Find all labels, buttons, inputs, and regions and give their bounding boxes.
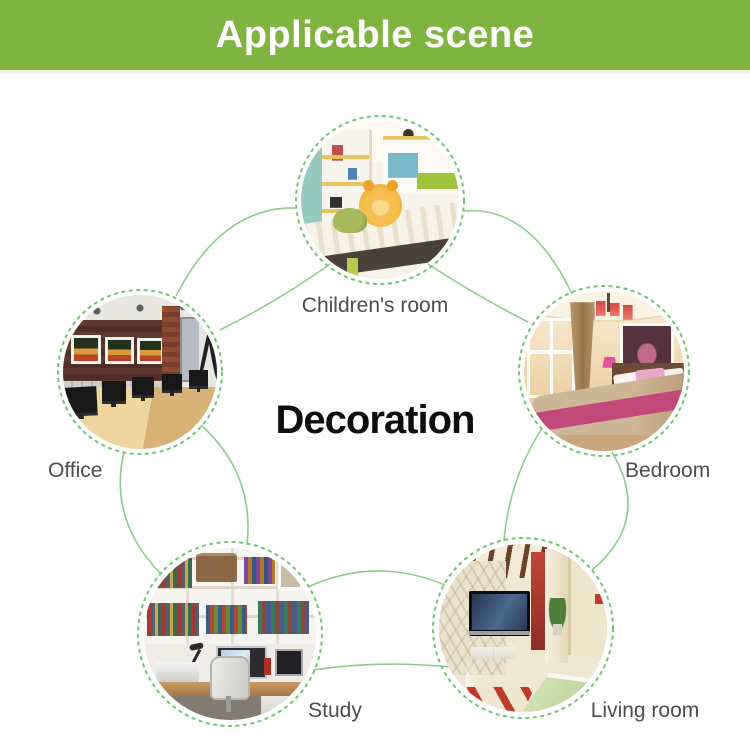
bedroom-photo xyxy=(524,291,684,451)
study-photo xyxy=(144,548,316,720)
books xyxy=(147,558,192,587)
television xyxy=(469,591,529,636)
office-monitor xyxy=(102,381,127,404)
label-childrens-room: Children's room xyxy=(302,294,448,318)
red-accent-column xyxy=(531,552,544,649)
office-picture-frame xyxy=(71,335,102,364)
wall-switch xyxy=(595,594,603,604)
office-photo xyxy=(63,295,217,449)
books xyxy=(244,557,275,585)
hallway xyxy=(568,557,607,654)
bedroom-window xyxy=(527,318,575,398)
patterned-rug xyxy=(439,687,535,712)
printer xyxy=(156,662,199,684)
label-living-room: Living room xyxy=(591,699,700,723)
study-photo-frame xyxy=(278,562,303,590)
label-office: Office xyxy=(48,459,102,483)
childrens-room-photo xyxy=(301,121,459,279)
bedroom-floor xyxy=(524,435,684,451)
office-monitor xyxy=(63,387,98,418)
books xyxy=(206,605,247,634)
living-room-photo xyxy=(439,544,607,712)
books xyxy=(258,601,310,634)
center-title: Decoration xyxy=(276,398,475,443)
tv-cabinet xyxy=(447,640,539,664)
office-monitor xyxy=(189,370,207,388)
office-chair xyxy=(206,656,251,720)
office-monitor xyxy=(132,377,154,398)
pen-holder xyxy=(264,658,271,675)
label-bedroom: Bedroom xyxy=(625,459,710,483)
books xyxy=(147,603,199,636)
green-plush-toy xyxy=(333,208,368,233)
office-picture-frame xyxy=(105,337,134,365)
study-suitcase xyxy=(196,553,237,582)
potted-plant xyxy=(547,598,569,635)
label-study: Study xyxy=(308,699,362,723)
childrens-wardrobe xyxy=(383,121,459,194)
second-monitor xyxy=(275,649,303,675)
office-picture-frame xyxy=(137,338,165,364)
office-monitor xyxy=(162,374,182,394)
childrens-bed-leg xyxy=(347,258,358,275)
